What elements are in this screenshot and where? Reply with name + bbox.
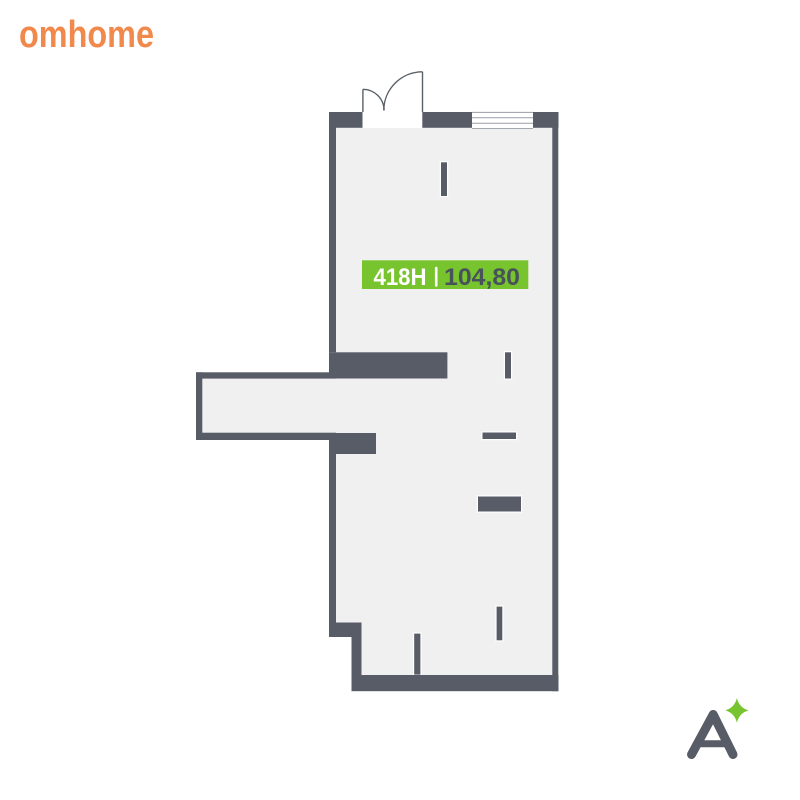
svg-text:104,80: 104,80 bbox=[444, 264, 520, 291]
svg-text:omhome: omhome bbox=[19, 14, 154, 56]
svg-text:418H: 418H bbox=[374, 264, 427, 291]
